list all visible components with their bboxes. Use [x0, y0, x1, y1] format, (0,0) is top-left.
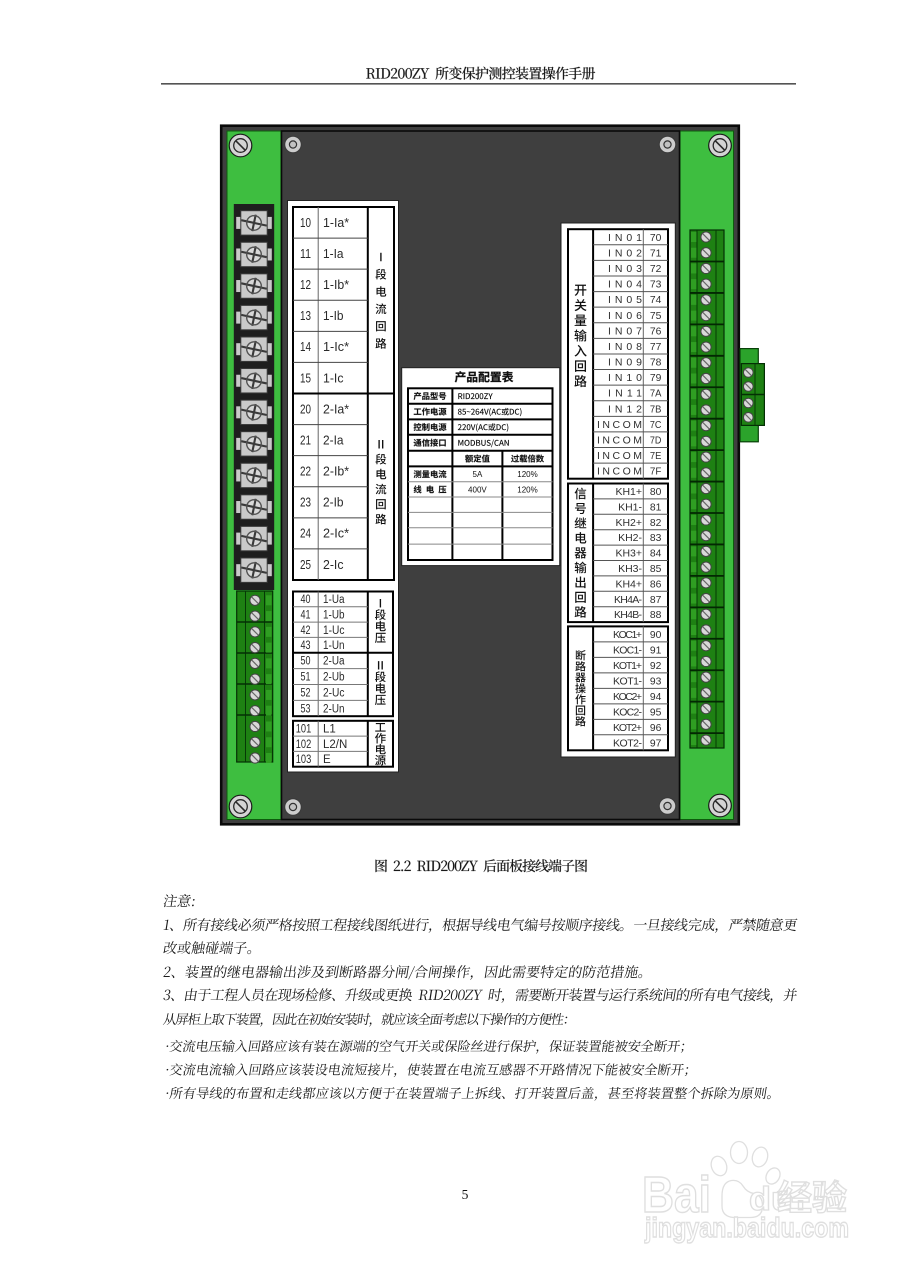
- svg-text:1-Ua: 1-Ua: [323, 594, 345, 606]
- svg-text:10: 10: [300, 216, 311, 230]
- svg-text:75: 75: [650, 310, 662, 322]
- svg-text:KOT1+: KOT1+: [613, 660, 642, 672]
- svg-text:40: 40: [301, 594, 311, 606]
- svg-text:70: 70: [650, 232, 662, 244]
- svg-text:L2/N: L2/N: [323, 739, 347, 751]
- svg-text:20: 20: [300, 402, 311, 416]
- svg-text:24: 24: [300, 527, 311, 541]
- svg-text:INCOM: INCOM: [597, 466, 642, 478]
- svg-text:120%: 120%: [517, 485, 537, 494]
- svg-text:5: 5: [462, 1187, 469, 1202]
- svg-text:7F: 7F: [650, 466, 662, 478]
- svg-text:14: 14: [300, 340, 311, 354]
- svg-text:2-Uc: 2-Uc: [323, 687, 345, 699]
- svg-text:KH1-: KH1-: [618, 501, 642, 513]
- svg-text:1-Ia*: 1-Ia*: [323, 216, 349, 230]
- svg-text:KH1+: KH1+: [615, 486, 642, 498]
- svg-text:50: 50: [301, 656, 311, 668]
- svg-text:85: 85: [650, 563, 662, 575]
- svg-text:KH2-: KH2-: [618, 532, 642, 544]
- svg-text:KH4B-: KH4B-: [614, 609, 643, 621]
- svg-text:INCOM: INCOM: [597, 450, 642, 462]
- svg-text:22: 22: [300, 465, 311, 479]
- svg-text:E: E: [323, 754, 331, 766]
- svg-text:78: 78: [650, 357, 662, 369]
- svg-text:2-Ic: 2-Ic: [323, 558, 344, 572]
- svg-text:120%: 120%: [517, 470, 537, 479]
- svg-text:11: 11: [300, 247, 311, 261]
- svg-text:7C: 7C: [650, 419, 662, 431]
- svg-text:82: 82: [650, 517, 662, 529]
- svg-text:72: 72: [650, 263, 662, 275]
- svg-text:400V: 400V: [468, 485, 487, 494]
- svg-text:79: 79: [650, 372, 662, 384]
- svg-text:KH4A-: KH4A-: [614, 594, 643, 606]
- svg-text:KOC1-: KOC1-: [613, 644, 643, 656]
- svg-text:53: 53: [301, 703, 311, 715]
- svg-text:1-Ib*: 1-Ib*: [323, 278, 349, 292]
- svg-text:91: 91: [650, 644, 662, 656]
- svg-text:95: 95: [650, 706, 662, 718]
- svg-text:92: 92: [650, 660, 662, 672]
- svg-text:L1: L1: [323, 723, 336, 735]
- svg-text:86: 86: [650, 578, 662, 590]
- svg-text:2-Ib: 2-Ib: [323, 496, 344, 510]
- svg-text:103: 103: [296, 754, 312, 766]
- svg-text:73: 73: [650, 279, 662, 291]
- svg-text:71: 71: [650, 247, 662, 259]
- svg-text:5A: 5A: [473, 470, 483, 479]
- svg-text:2-Un: 2-Un: [323, 703, 345, 715]
- svg-text:KOT2+: KOT2+: [613, 722, 642, 734]
- svg-text:76: 76: [650, 325, 662, 337]
- svg-text:84: 84: [650, 548, 662, 560]
- svg-text:1-Ic*: 1-Ic*: [323, 340, 349, 354]
- svg-text:101: 101: [296, 723, 312, 735]
- svg-text:7A: 7A: [650, 388, 662, 400]
- svg-text:jingyan.baidu.com: jingyan.baidu.com: [644, 1212, 849, 1243]
- svg-text:52: 52: [301, 687, 311, 699]
- svg-text:1-Uc: 1-Uc: [323, 625, 345, 637]
- svg-text:51: 51: [301, 672, 311, 684]
- svg-text:83: 83: [650, 532, 662, 544]
- svg-text:25: 25: [300, 558, 311, 572]
- svg-text:81: 81: [650, 501, 662, 513]
- svg-text:7B: 7B: [650, 403, 662, 415]
- svg-text:KH2+: KH2+: [615, 517, 642, 529]
- svg-text:KOT2-: KOT2-: [613, 737, 643, 749]
- svg-text:23: 23: [300, 496, 311, 510]
- svg-text:41: 41: [301, 609, 311, 621]
- svg-text:INCOM: INCOM: [597, 435, 642, 447]
- svg-text:KH3-: KH3-: [618, 563, 642, 575]
- svg-text:KOC2-: KOC2-: [613, 706, 643, 718]
- svg-text:1-Ia: 1-Ia: [323, 247, 344, 261]
- svg-text:102: 102: [296, 739, 312, 751]
- svg-text:1-Ib: 1-Ib: [323, 309, 344, 323]
- svg-text:42: 42: [301, 625, 311, 637]
- svg-text:KH3+: KH3+: [615, 548, 642, 560]
- svg-text:21: 21: [300, 433, 311, 447]
- svg-text:7D: 7D: [650, 435, 662, 447]
- svg-text:1-Un: 1-Un: [323, 640, 345, 652]
- svg-text:97: 97: [650, 737, 662, 749]
- svg-text:KH4+: KH4+: [615, 578, 642, 590]
- svg-text:12: 12: [300, 278, 311, 292]
- svg-text:77: 77: [650, 341, 662, 353]
- svg-text:88: 88: [650, 609, 662, 621]
- svg-text:INCOM: INCOM: [597, 419, 642, 431]
- svg-text:7E: 7E: [650, 450, 662, 462]
- svg-text:96: 96: [650, 722, 662, 734]
- svg-text:2-Ua: 2-Ua: [323, 656, 345, 668]
- svg-text:87: 87: [650, 594, 662, 606]
- svg-text:1-Ub: 1-Ub: [323, 609, 345, 621]
- svg-text:2-Ib*: 2-Ib*: [323, 465, 349, 479]
- svg-text:2-Ic*: 2-Ic*: [323, 527, 349, 541]
- svg-text:15: 15: [300, 371, 311, 385]
- svg-text:1-Ic: 1-Ic: [323, 371, 344, 385]
- svg-text:13: 13: [300, 309, 311, 323]
- svg-text:43: 43: [301, 640, 311, 652]
- svg-text:2-Ia: 2-Ia: [323, 433, 344, 447]
- svg-text:90: 90: [650, 629, 662, 641]
- svg-text:93: 93: [650, 675, 662, 687]
- svg-text:74: 74: [650, 294, 662, 306]
- svg-text:94: 94: [650, 691, 662, 703]
- svg-text:80: 80: [650, 486, 662, 498]
- svg-text:2-Ia*: 2-Ia*: [323, 402, 349, 416]
- svg-text:KOT1-: KOT1-: [613, 675, 643, 687]
- svg-text:KOC1+: KOC1+: [613, 629, 642, 641]
- svg-text:2-Ub: 2-Ub: [323, 672, 345, 684]
- svg-text:KOC2+: KOC2+: [613, 691, 642, 703]
